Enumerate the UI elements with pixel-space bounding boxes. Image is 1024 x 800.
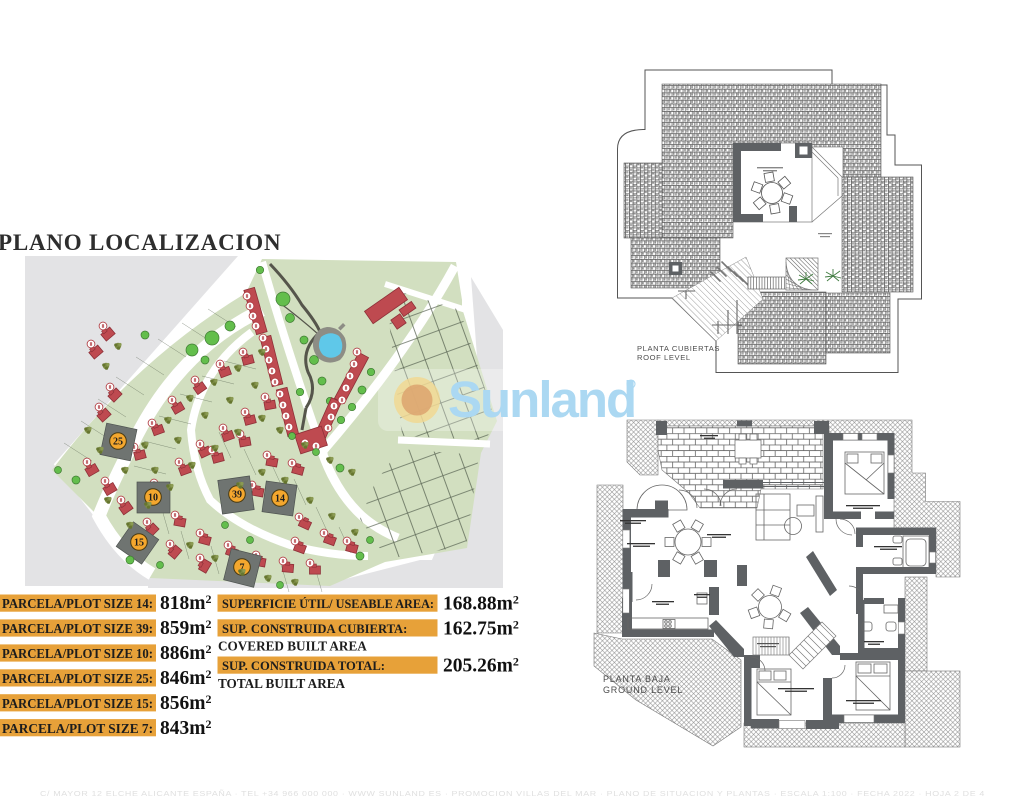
svg-text:205.26m2: 205.26m2 [443,655,519,677]
svg-text:PARCELA/PLOT SIZE 39:: PARCELA/PLOT SIZE 39: [2,621,153,636]
svg-text:10: 10 [148,492,158,503]
svg-text:168.88m2: 168.88m2 [443,593,519,615]
svg-text:ROOF LEVEL: ROOF LEVEL [637,353,691,362]
svg-text:886m2: 886m2 [160,642,212,664]
svg-text:39: 39 [232,489,242,500]
svg-text:15: 15 [134,537,144,548]
svg-text:PARCELA/PLOT SIZE 10:: PARCELA/PLOT SIZE 10: [2,646,153,661]
svg-text:PARCELA/PLOT SIZE 14:: PARCELA/PLOT SIZE 14: [2,596,153,611]
svg-text:COVERED BUILT AREA: COVERED BUILT AREA [218,639,367,654]
svg-text:PLANO LOCALIZACION: PLANO LOCALIZACION [0,230,281,255]
svg-text:Sunland: Sunland [448,371,635,428]
svg-text:859m2: 859m2 [160,617,212,639]
svg-text:TOTAL BUILT AREA: TOTAL BUILT AREA [218,676,346,691]
svg-text:162.75m2: 162.75m2 [443,617,519,639]
svg-text:PARCELA/PLOT SIZE 25:: PARCELA/PLOT SIZE 25: [2,671,153,686]
svg-text:GROUND LEVEL: GROUND LEVEL [603,685,683,695]
svg-text:SUP. CONSTRUIDA TOTAL:: SUP. CONSTRUIDA TOTAL: [222,659,385,673]
svg-text:846m2: 846m2 [160,667,212,689]
svg-text:PLANTA CUBIERTAS: PLANTA CUBIERTAS [637,344,720,353]
svg-text:25: 25 [113,436,123,447]
svg-text:PARCELA/PLOT SIZE 15:: PARCELA/PLOT SIZE 15: [2,696,153,711]
svg-text:843m2: 843m2 [160,717,212,739]
svg-text:SUPERFICIE ÚTIL/ USEABLE AREA:: SUPERFICIE ÚTIL/ USEABLE AREA: [222,597,434,611]
svg-text:C/ MAYOR 12 ELCHE ALICANTE ESP: C/ MAYOR 12 ELCHE ALICANTE ESPAÑA · TEL … [40,789,985,798]
svg-text:818m2: 818m2 [160,592,212,614]
svg-text:PLANTA BAJA: PLANTA BAJA [603,674,671,684]
svg-text:14: 14 [275,493,285,504]
svg-text:SUP. CONSTRUIDA CUBIERTA:: SUP. CONSTRUIDA CUBIERTA: [222,622,407,636]
svg-text:856m2: 856m2 [160,692,212,714]
svg-text:PARCELA/PLOT SIZE 7:: PARCELA/PLOT SIZE 7: [2,721,153,736]
